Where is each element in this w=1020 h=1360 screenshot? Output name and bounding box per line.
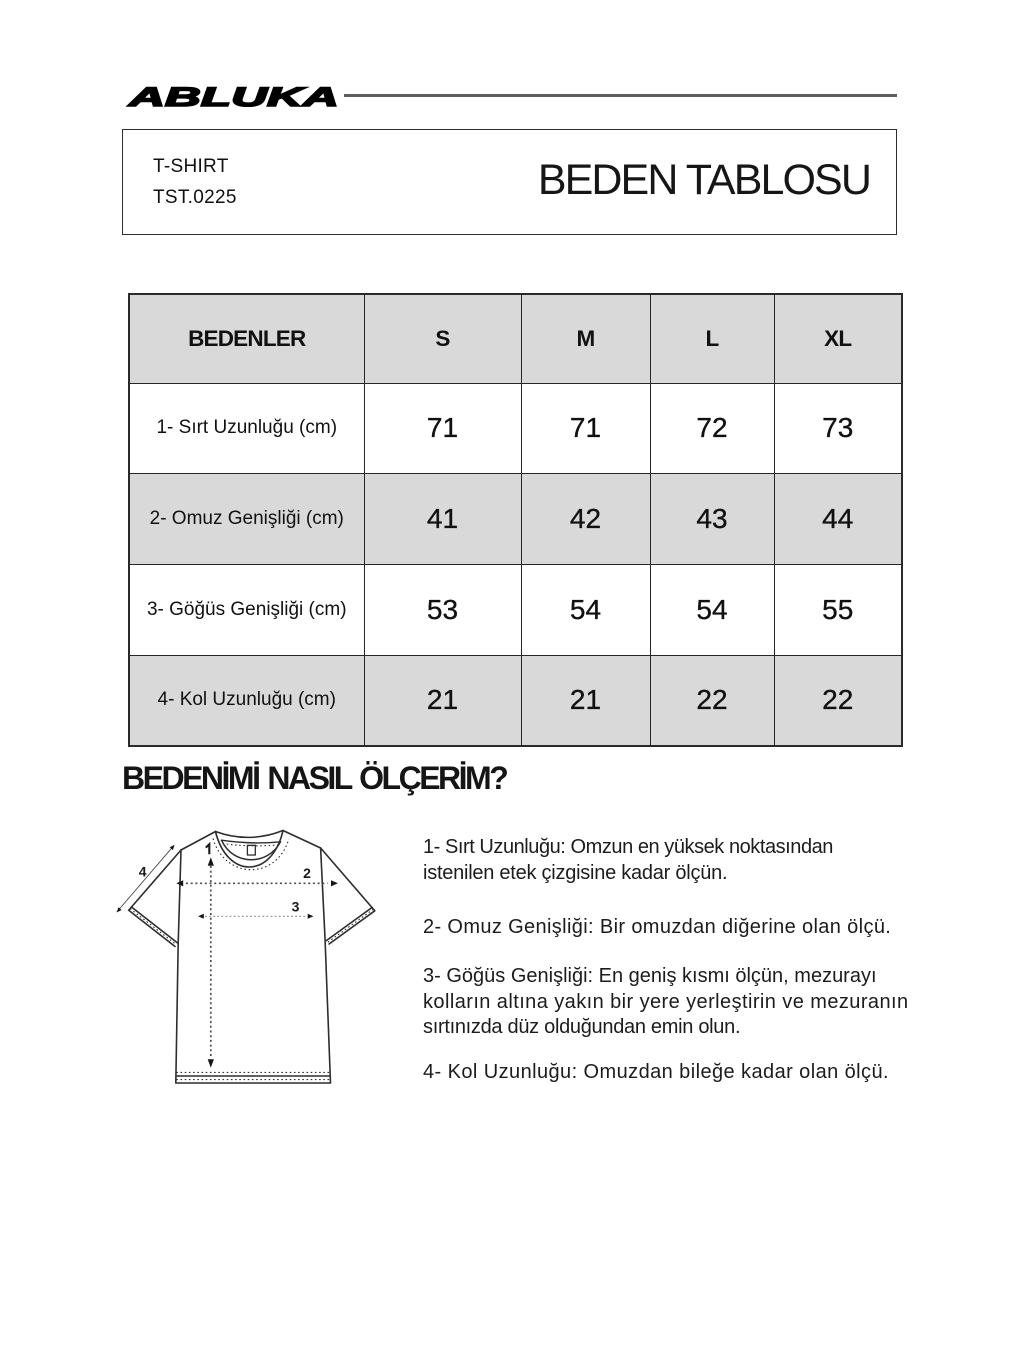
svg-text:2: 2 bbox=[303, 865, 311, 881]
svg-text:4: 4 bbox=[139, 864, 147, 880]
svg-text:3: 3 bbox=[292, 899, 300, 915]
